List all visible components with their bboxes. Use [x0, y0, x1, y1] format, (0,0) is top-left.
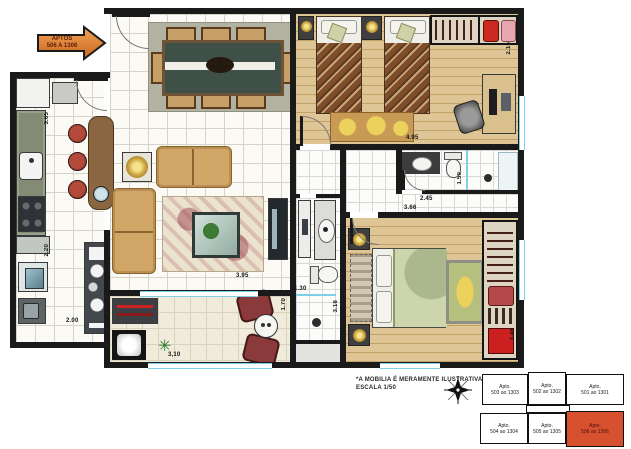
- balcony-table: [254, 314, 278, 338]
- washing-machine: [18, 262, 48, 292]
- shoes-icon: [488, 308, 512, 324]
- unit-range: 502 ao 1302: [533, 389, 561, 395]
- centerpiece: [206, 57, 234, 73]
- keyplan-unit-502: Apto. 502 ao 1302: [528, 372, 566, 405]
- dim-living-width: 3.95: [236, 273, 248, 279]
- bag-icon: [501, 20, 516, 42]
- wall-service-bottom: [10, 342, 110, 348]
- hangers-icon: [435, 20, 475, 40]
- cup-icon: [267, 323, 271, 327]
- plant-icon: [203, 223, 219, 239]
- bed-single: [316, 16, 362, 114]
- shaft: [296, 344, 340, 362]
- desk: [482, 74, 516, 134]
- keyplan-unit-501: Apto. 501 ao 1301: [566, 374, 624, 405]
- stored-bag-icon: [488, 286, 514, 306]
- tank-basin: [23, 303, 39, 319]
- dim-bathright-height: 1.50: [457, 172, 463, 184]
- nightstand: [360, 16, 382, 40]
- cup-icon: [261, 323, 265, 327]
- pillow: [376, 291, 392, 323]
- cooktop: [18, 196, 45, 232]
- master-window: [380, 363, 440, 369]
- dim-master-width: 3.66: [404, 205, 416, 211]
- wall-right: [518, 8, 524, 368]
- bed-blanket: [385, 43, 429, 113]
- cabinet-shelf: [89, 323, 104, 328]
- corridor-floor: [346, 150, 402, 212]
- lamp-icon: [353, 329, 366, 342]
- north-compass-icon: [440, 374, 476, 406]
- suitcase-icon: [483, 20, 499, 42]
- fridge: [16, 78, 50, 108]
- keyplan-unit-506-highlighted: Apto. 506 ao 1306: [566, 411, 624, 447]
- balcony-door-window: [140, 291, 258, 297]
- balcony-window: [148, 363, 272, 369]
- wall-bath2-bottom: [296, 340, 340, 344]
- bar-stool: [68, 152, 87, 171]
- dim-kitchen-height: 3.65: [44, 112, 50, 124]
- bedside-rug: [350, 254, 372, 322]
- wardrobe: [430, 15, 518, 45]
- unit-range: 506 ao 1306: [581, 429, 609, 435]
- shower-glass: [296, 294, 336, 296]
- bbq-grill: [112, 298, 158, 324]
- wall-spine: [290, 8, 296, 362]
- floor-plan-sheet: ✳ 3.65 2.20 2.00 3.95 3,10 1.70 4.95 2.1…: [0, 0, 631, 449]
- faucet-icon: [29, 158, 34, 163]
- shower-stall: [498, 152, 518, 194]
- nightstand: [298, 16, 314, 40]
- bedroom1-rug: [330, 112, 414, 142]
- skewer-icon: [117, 313, 153, 316]
- dim-bath2-height: 3.18: [333, 300, 339, 312]
- dim-service-width: 2.00: [66, 318, 78, 324]
- balcony-light-box: [112, 330, 146, 360]
- bar-stool: [68, 124, 87, 143]
- pillow: [376, 255, 392, 287]
- monitor-icon: [489, 89, 497, 115]
- sofa-top: [156, 146, 232, 188]
- unit-range: 503 ao 1303: [491, 390, 519, 396]
- washer-door-icon: [25, 268, 44, 289]
- unit-range: 504 ao 1304: [490, 429, 518, 435]
- tv-screen: [272, 209, 277, 249]
- lamp-icon: [366, 21, 378, 33]
- light-panel: [117, 334, 141, 356]
- bed-blanket: [317, 43, 361, 113]
- dim-master-height: 3.46: [510, 328, 516, 340]
- keyboard-icon: [501, 93, 511, 111]
- dim-service-height: 2.20: [44, 244, 50, 256]
- shelves-icon: [487, 226, 513, 282]
- sofa-left: [112, 188, 156, 274]
- tv-rack: [268, 198, 288, 260]
- door-gap-bath2: [300, 194, 316, 198]
- unit-range: 505 ao 1305: [533, 429, 561, 435]
- lamp-icon: [301, 21, 312, 32]
- dim-balcony-height: 1.70: [281, 298, 287, 310]
- arrow-label-line2: 506 A 1306: [38, 43, 86, 50]
- shower-glass: [466, 150, 468, 192]
- dim-bedroom1-height: 2.15: [506, 42, 512, 54]
- bar-stool: [68, 180, 87, 199]
- bar-sink: [93, 186, 109, 202]
- cabinet-box: [89, 247, 104, 260]
- keyplan-unit-505: Apto. 505 ao 1305: [528, 413, 566, 444]
- bed-double: [372, 248, 446, 328]
- kitchen-sink: [19, 152, 43, 180]
- dim-hall-width: 2.45: [420, 196, 432, 202]
- toilet-icon: [318, 266, 338, 283]
- coffee-table: [192, 212, 240, 258]
- note-line2: ESCALA 1/50: [356, 385, 396, 391]
- foot-rug-art: [446, 260, 484, 324]
- wall-top: [104, 8, 524, 14]
- plant-icon: ✳: [158, 336, 184, 362]
- nightstand: [348, 324, 370, 346]
- skewer-icon: [117, 305, 153, 308]
- vanity: [314, 200, 336, 260]
- bed-single: [384, 16, 430, 114]
- wall-left: [10, 72, 16, 348]
- upper-cabinet: [52, 82, 78, 104]
- wardrobe-divider: [478, 17, 480, 43]
- basin-icon: [412, 157, 432, 171]
- keyplan-circulation: Circulação: [526, 405, 570, 413]
- unit-range: 501 ao 1301: [581, 390, 609, 396]
- side-table: [122, 152, 152, 182]
- faucet-icon: [323, 227, 328, 232]
- keyplan: Apto. 503 ao 1303 Apto. 502 ao 1302 Apto…: [480, 370, 628, 448]
- shower-head-icon: [484, 174, 492, 182]
- keyplan-unit-504: Apto. 504 ao 1304: [480, 413, 528, 444]
- laundry-tank: [18, 298, 46, 324]
- dim-bedroom1-width: 4.95: [406, 135, 418, 141]
- bedroom1-window: [519, 96, 525, 150]
- apartment-range-arrow: APTOS 506 A 1306: [36, 24, 108, 62]
- wall-service-right: [104, 230, 110, 368]
- bed-blanket: [393, 249, 447, 327]
- cabinet-item: [302, 219, 308, 235]
- keyplan-unit-503: Apto. 503 ao 1303: [482, 374, 528, 405]
- door-gap-bathright: [402, 190, 422, 194]
- table-lamp-icon: [126, 156, 148, 178]
- master-side-window: [519, 240, 525, 300]
- bath2-cabinet: [298, 200, 311, 258]
- wall-bath2-right: [340, 150, 346, 362]
- shower-head-icon: [312, 318, 321, 327]
- dining-table: [162, 40, 284, 96]
- dim-shower-width: 1.30: [294, 286, 306, 292]
- arrow-label-line1: APTOS: [38, 36, 86, 43]
- dim-balcony-width: 3,10: [168, 352, 180, 358]
